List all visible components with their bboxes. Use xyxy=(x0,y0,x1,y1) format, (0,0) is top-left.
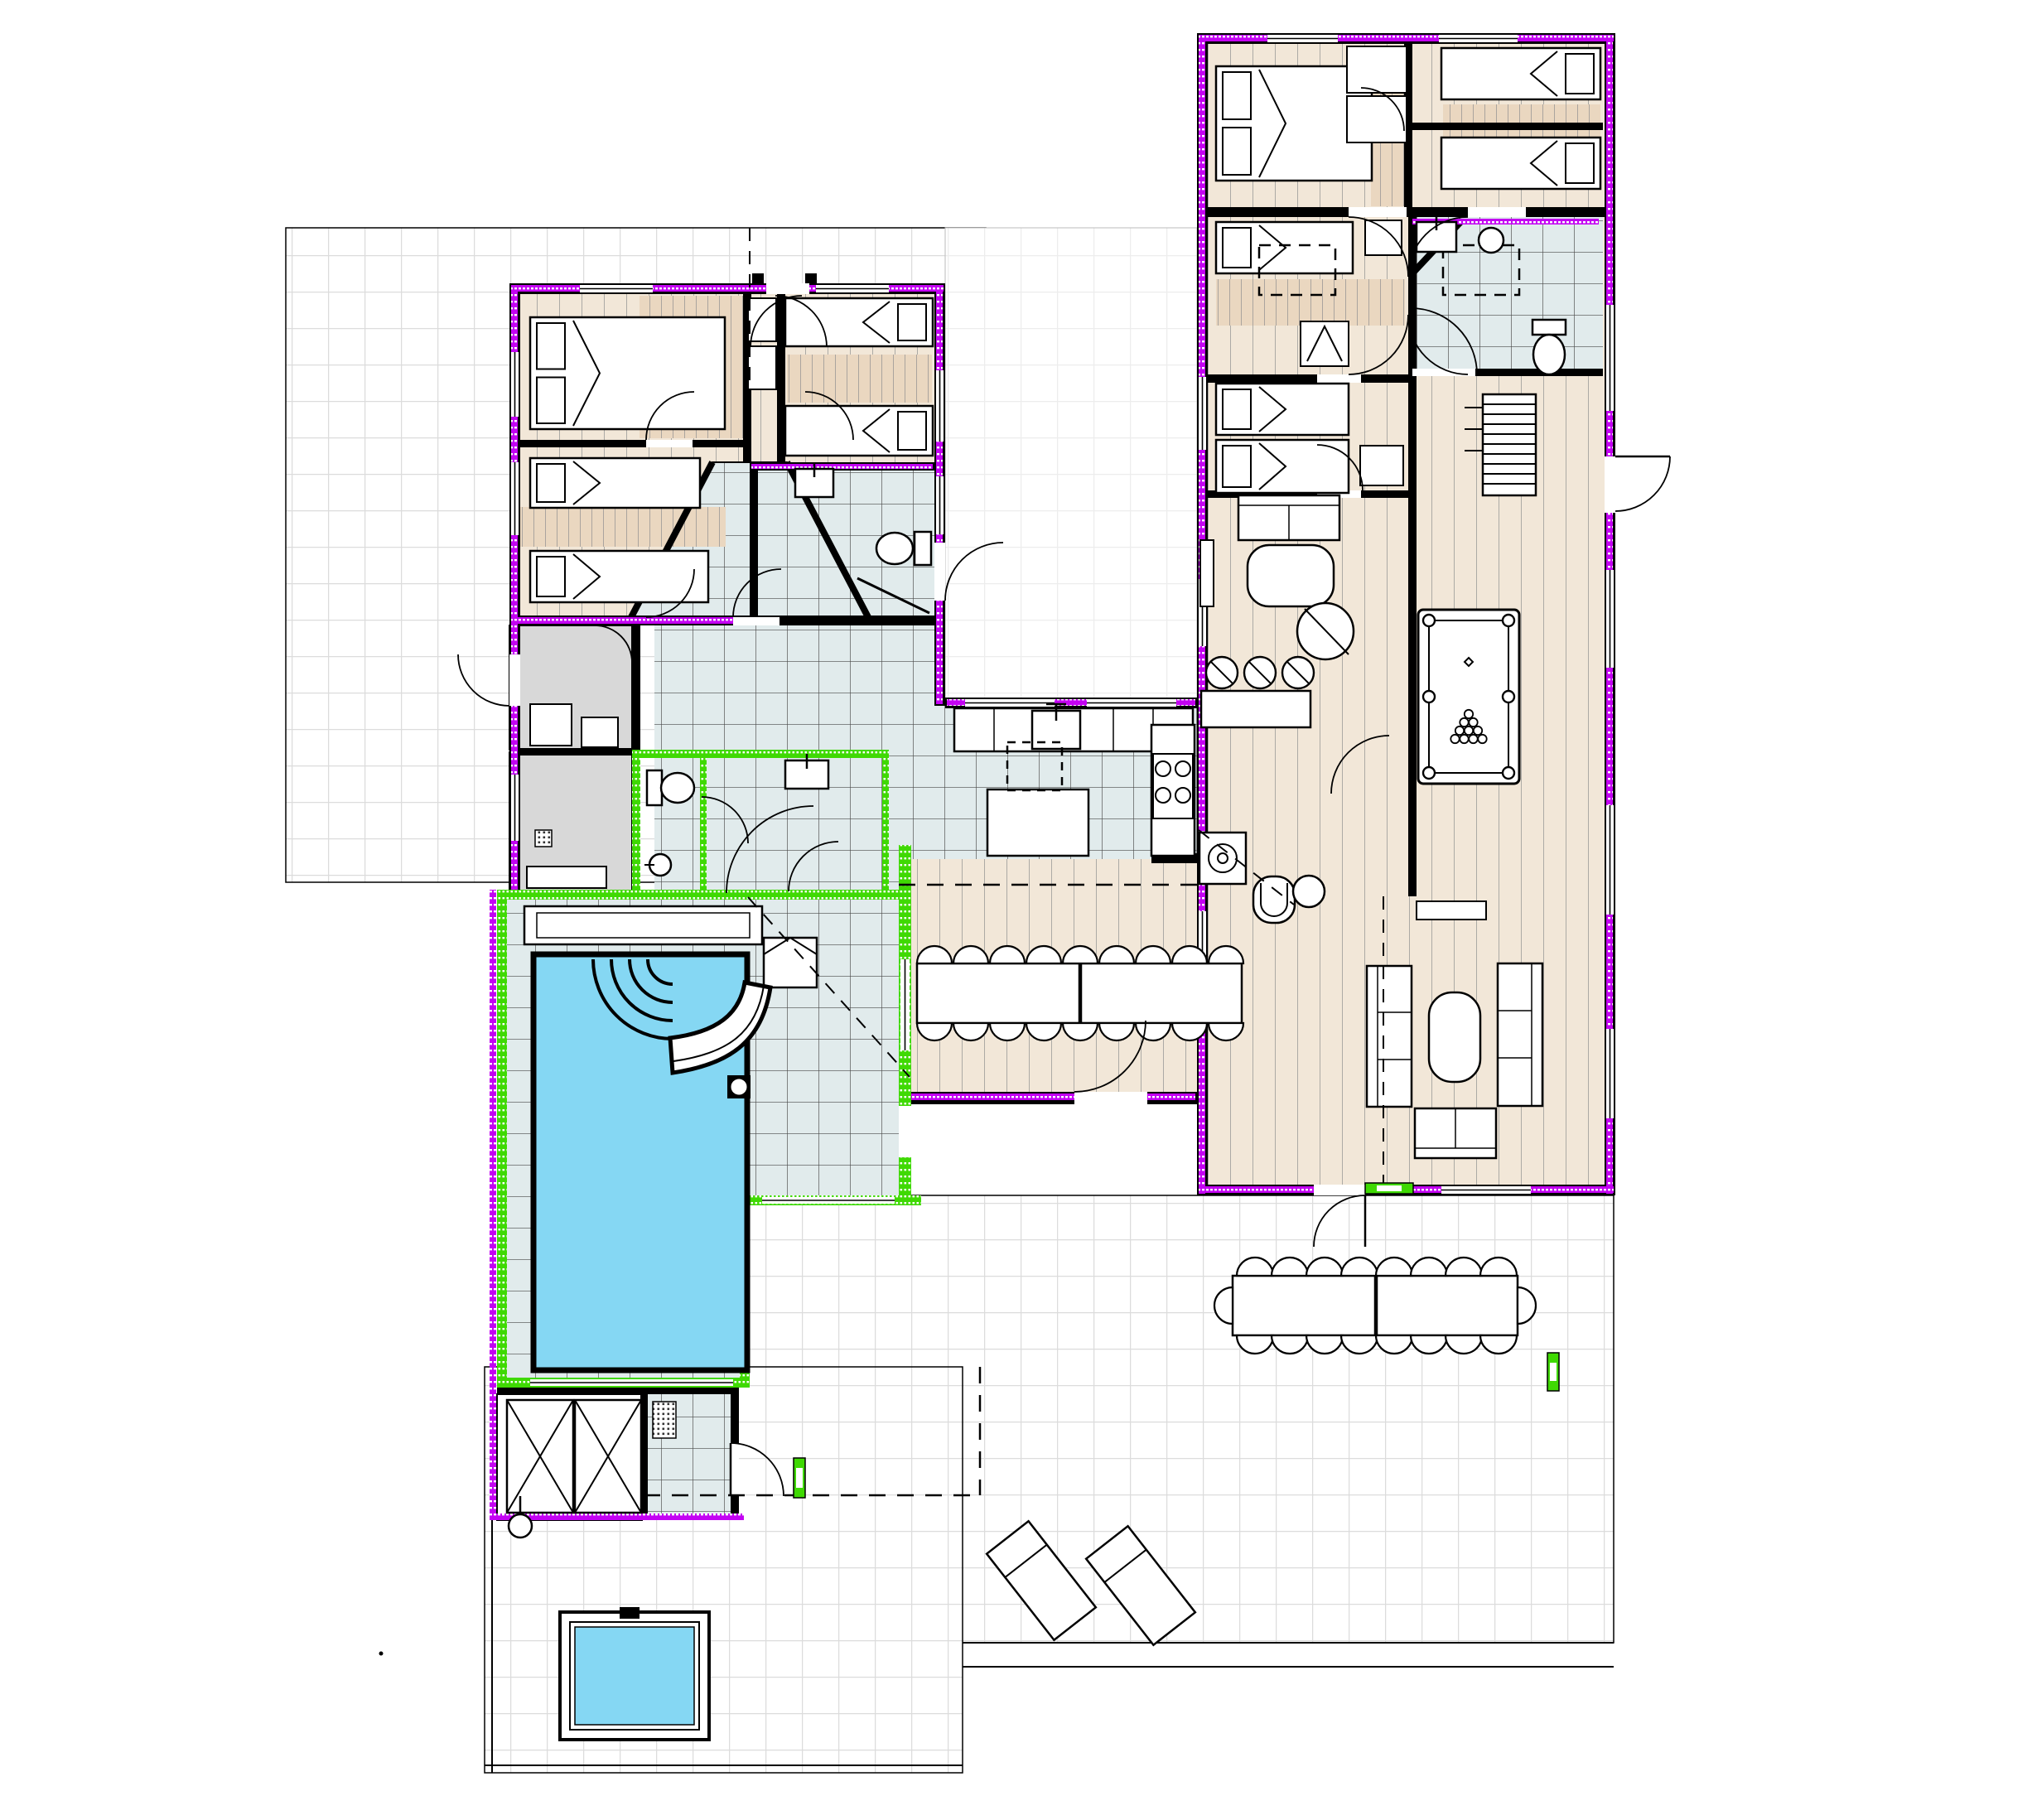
window-lw-top-2 xyxy=(816,285,889,292)
billiard-table-rack-ball xyxy=(1465,710,1473,718)
door-gap-bath1 xyxy=(733,617,779,625)
insulation-tech-left xyxy=(490,1388,496,1520)
billiard-table-rack-ball xyxy=(1469,735,1477,743)
billiard-table-pocket-01 xyxy=(1423,691,1435,702)
door-gap-entry xyxy=(766,283,809,294)
wall-bath1-left xyxy=(750,462,758,617)
pool-ladder-ring xyxy=(731,1079,746,1094)
door-gap-rw-h1b xyxy=(1468,207,1526,217)
nightstand-r4 xyxy=(1365,220,1402,255)
billiard-table-pocket-02 xyxy=(1423,767,1435,779)
floor-kitchen-pass xyxy=(934,706,945,859)
billiard-table-rack-ball xyxy=(1455,727,1464,735)
bar-stool-1 xyxy=(1206,657,1238,688)
insulation-pool-left xyxy=(490,890,496,1388)
bed-double-1-pillow-1 xyxy=(537,323,565,369)
tech-shower-head xyxy=(653,1402,676,1438)
bed-double-1 xyxy=(530,317,725,429)
wetwall-wc-left xyxy=(632,750,640,893)
door-gap-dining xyxy=(1074,1092,1147,1104)
door-gap-living-terrace xyxy=(1314,1185,1365,1195)
window-court-1 xyxy=(936,370,944,442)
outdoor-shower xyxy=(509,1514,532,1538)
bed-single-2 xyxy=(530,551,708,602)
bed-single-4-pillow xyxy=(898,412,926,450)
kitchen-island xyxy=(987,789,1088,856)
closet-rw-2 xyxy=(1347,96,1407,142)
closet-rw-1 xyxy=(1347,46,1407,93)
door-gap-pool-east xyxy=(899,1106,911,1157)
side-table xyxy=(1293,876,1325,907)
wetwall-wc-top xyxy=(632,750,889,758)
wall-bra-brb xyxy=(520,440,750,447)
outdoor-table-1 xyxy=(1233,1276,1375,1335)
courtyard xyxy=(945,228,1197,702)
green-marker-3-glass xyxy=(1377,1185,1402,1191)
nightstand-r56 xyxy=(1360,446,1403,485)
bed-double-2-pillow-2 xyxy=(1223,128,1251,175)
window-lw-left-2 xyxy=(511,462,519,535)
green-marker-2-glass xyxy=(1550,1363,1557,1381)
slide-platform xyxy=(764,938,817,987)
billiard-table-felt xyxy=(1429,620,1508,773)
wetwall-bath2-right xyxy=(882,750,889,893)
kitchen-stove xyxy=(1153,754,1193,818)
door-gap-tech xyxy=(731,1443,739,1496)
wall-rw-r2r3 xyxy=(1412,123,1603,130)
bed-single-4 xyxy=(785,406,933,456)
bed-single-3 xyxy=(785,298,933,346)
billiard-table-rack-ball xyxy=(1478,735,1486,743)
bed-single-8 xyxy=(1216,384,1349,435)
bed-single-2-pillow xyxy=(537,557,565,596)
bed-single-6 xyxy=(1441,138,1600,189)
pool-cover-inner xyxy=(537,913,750,938)
wetwall-pool-left xyxy=(497,890,507,1388)
rug-bed-b xyxy=(520,507,726,547)
window-rw-right-2 xyxy=(1606,570,1614,668)
bench-service xyxy=(527,867,606,888)
laundry-box-1 xyxy=(530,704,572,746)
tech-crate-1 xyxy=(507,1400,573,1513)
bed-single-5-pillow xyxy=(1566,54,1594,94)
coffee-table xyxy=(1429,992,1480,1082)
wall-rw-vmain xyxy=(1408,217,1417,896)
laundry-box-2 xyxy=(582,717,618,747)
insulation-rw-top xyxy=(1199,35,1614,41)
door-gap-lw-left xyxy=(509,654,520,706)
hot-tub-jet xyxy=(620,1607,640,1619)
bar-stool-3 xyxy=(1282,657,1314,688)
insulation-dining-bottom xyxy=(900,1093,1195,1100)
bar-stool-2 xyxy=(1244,657,1276,688)
wall-rw-h2 xyxy=(1197,374,1412,383)
floor-plan-canvas xyxy=(0,0,2032,1820)
rug-bed-r4 xyxy=(1216,279,1405,326)
entry-canopy-1 xyxy=(752,273,764,283)
tv-sideboard xyxy=(1417,901,1486,920)
billiard-table-rack-ball xyxy=(1460,718,1468,727)
toilet-wc-bowl xyxy=(661,773,694,803)
bed-single-1-pillow xyxy=(537,464,565,502)
window-court-2 xyxy=(936,476,944,534)
window-pool-east xyxy=(900,959,910,1050)
wetwall-pool-top xyxy=(497,890,899,900)
bed-single-9-pillow xyxy=(1223,446,1251,487)
wall-tech-top xyxy=(497,1388,739,1394)
bed-single-6-pillow xyxy=(1566,143,1594,183)
window-rw-top-1 xyxy=(1267,35,1338,42)
dining-table-1 xyxy=(917,963,1079,1023)
green-marker-1-glass xyxy=(796,1468,803,1488)
floor-drain xyxy=(535,830,552,847)
window-rw-right-1 xyxy=(1606,305,1614,411)
rug-bed-c xyxy=(787,355,932,403)
window-rw-right-4 xyxy=(1606,1029,1614,1118)
dining-table-2 xyxy=(1081,963,1242,1023)
window-rw-bottom xyxy=(1441,1186,1531,1194)
billiard-table xyxy=(1418,610,1519,784)
window-pool-bottom xyxy=(530,1379,733,1386)
entry-canopy-2 xyxy=(805,273,817,283)
wall-service-mid xyxy=(509,748,632,756)
wetwall-wc-div xyxy=(700,758,707,893)
window-rw-left-1 xyxy=(1199,377,1206,450)
kitchen-oven xyxy=(1199,833,1246,884)
plan-dot xyxy=(379,1652,384,1656)
tv-panel xyxy=(1200,540,1214,606)
sofa-right xyxy=(1498,963,1542,1106)
bed-single-8-pillow xyxy=(1223,389,1251,429)
bed-single-7-pillow xyxy=(1223,228,1251,268)
window-rw-right-3 xyxy=(1606,805,1614,915)
toilet-bath-right-tank xyxy=(1532,320,1566,335)
bed-single-9 xyxy=(1216,440,1349,493)
billiard-table-pocket-12 xyxy=(1503,767,1514,779)
billiard-table-rack-ball xyxy=(1450,735,1459,743)
toilet-bath1-bowl xyxy=(876,533,913,564)
window-kitchen-2 xyxy=(1087,699,1176,707)
window-lw-left-3 xyxy=(511,775,519,841)
insulation-bath1-top xyxy=(751,464,933,469)
bed-single-5 xyxy=(1441,48,1600,99)
pool xyxy=(533,954,747,1370)
rug-bed-r23 xyxy=(1443,104,1600,138)
tech-crate-2 xyxy=(575,1400,641,1513)
bed-single-1 xyxy=(530,458,700,508)
window-kitchen-1 xyxy=(965,699,1055,707)
door-gap-rw-h2 xyxy=(1317,374,1361,383)
window-lw-left-1 xyxy=(511,352,519,417)
billiard-table-rack-ball xyxy=(1465,727,1473,735)
insulation-lw-mid xyxy=(511,617,750,624)
bed-single-7 xyxy=(1216,222,1353,273)
billiard-table-rack-ball xyxy=(1469,718,1477,727)
billiard-table-pocket-10 xyxy=(1503,615,1514,626)
hot-tub-water xyxy=(575,1627,694,1725)
bed-single-3-pillow xyxy=(898,304,926,340)
toilet-wc-tank xyxy=(647,770,662,805)
billiard-table-rack-ball xyxy=(1474,727,1482,735)
outdoor-table-2 xyxy=(1377,1276,1518,1335)
armchair-barrel xyxy=(1248,545,1334,606)
bed-double-2-pillow-1 xyxy=(1223,72,1251,119)
sink-bath-right-2 xyxy=(1479,228,1503,253)
billiard-table-rack-ball xyxy=(1460,735,1468,743)
door-gap-rw-right xyxy=(1605,456,1615,513)
window-lw-top-1 xyxy=(580,285,653,292)
window-pool-south xyxy=(762,1197,895,1204)
bed-double-1-pillow-2 xyxy=(537,378,565,424)
wall-hall-strip-2 xyxy=(777,283,785,462)
billiard-table-pocket-11 xyxy=(1503,691,1514,702)
door-gap-court xyxy=(934,543,945,601)
closet-hall-2 xyxy=(748,346,776,389)
sofa-left xyxy=(1367,966,1412,1107)
toilet-bath-right-bowl xyxy=(1533,335,1565,374)
door-gap-bra xyxy=(646,440,693,447)
door-gap-rw-h1a xyxy=(1349,207,1407,217)
floor-plan-page xyxy=(0,0,2032,1820)
toilet-bath1-tank xyxy=(915,532,931,565)
window-rw-top-2 xyxy=(1439,35,1518,42)
billiard-table-pocket-00 xyxy=(1423,615,1435,626)
bar-counter xyxy=(1201,691,1310,727)
